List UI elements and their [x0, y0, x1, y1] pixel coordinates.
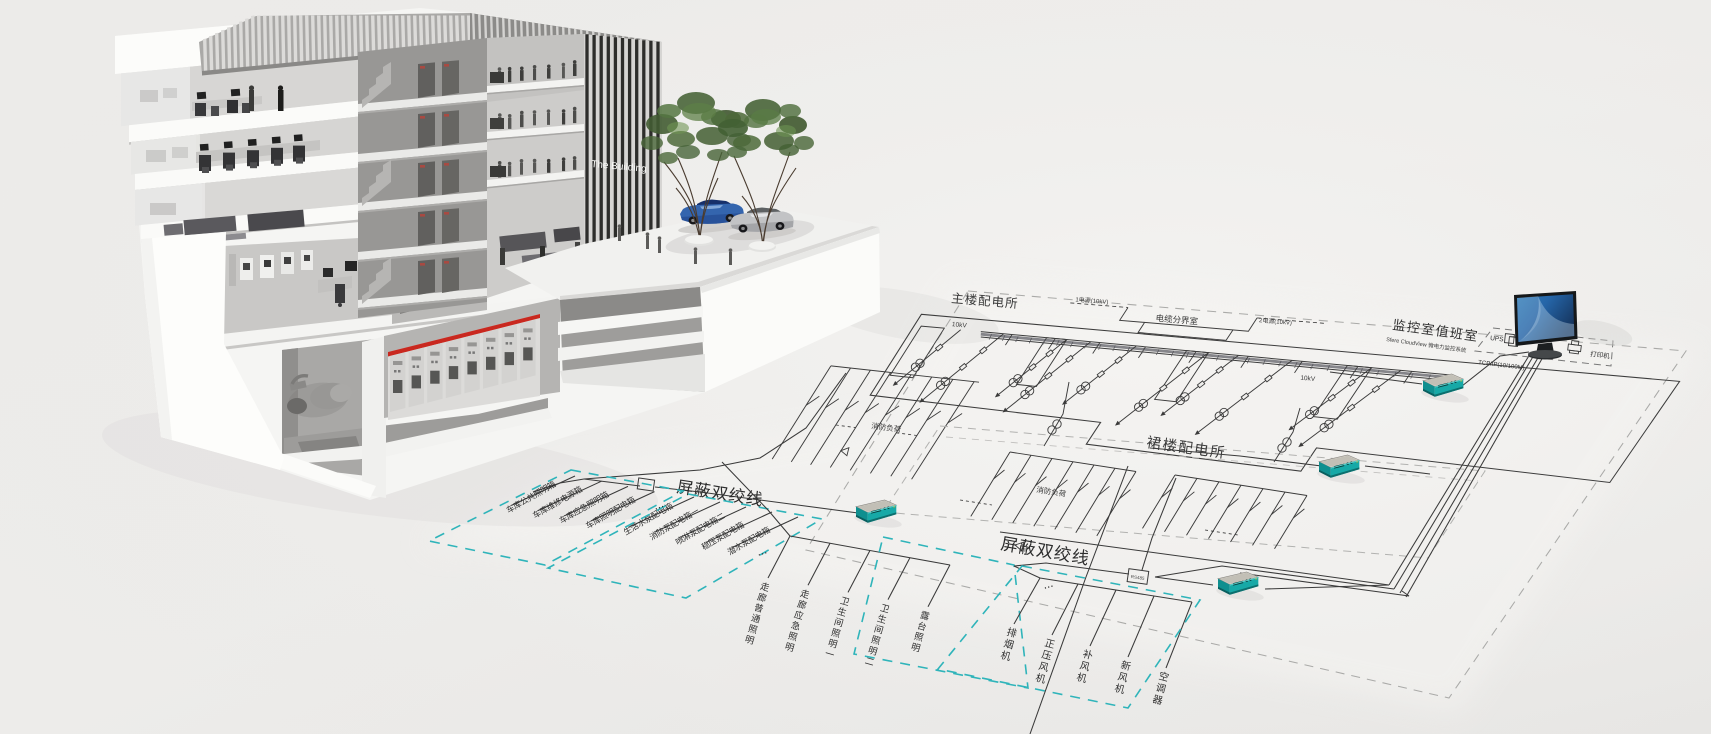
svg-text:10kV: 10kV	[952, 321, 968, 329]
svg-text:10kV: 10kV	[1300, 375, 1316, 383]
svg-text:UPS: UPS	[1490, 335, 1505, 343]
